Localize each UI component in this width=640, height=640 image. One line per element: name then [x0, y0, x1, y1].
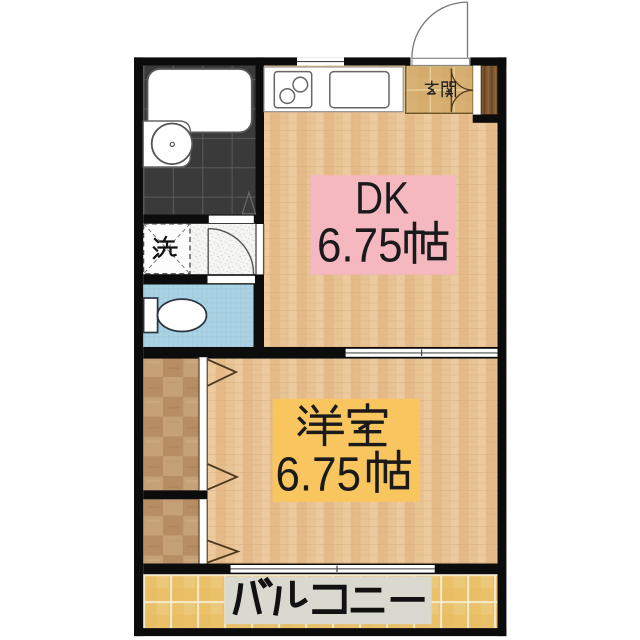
svg-text:6.75: 6.75: [276, 449, 362, 502]
svg-text:DK: DK: [355, 173, 409, 224]
svg-text:6.75: 6.75: [317, 219, 403, 272]
